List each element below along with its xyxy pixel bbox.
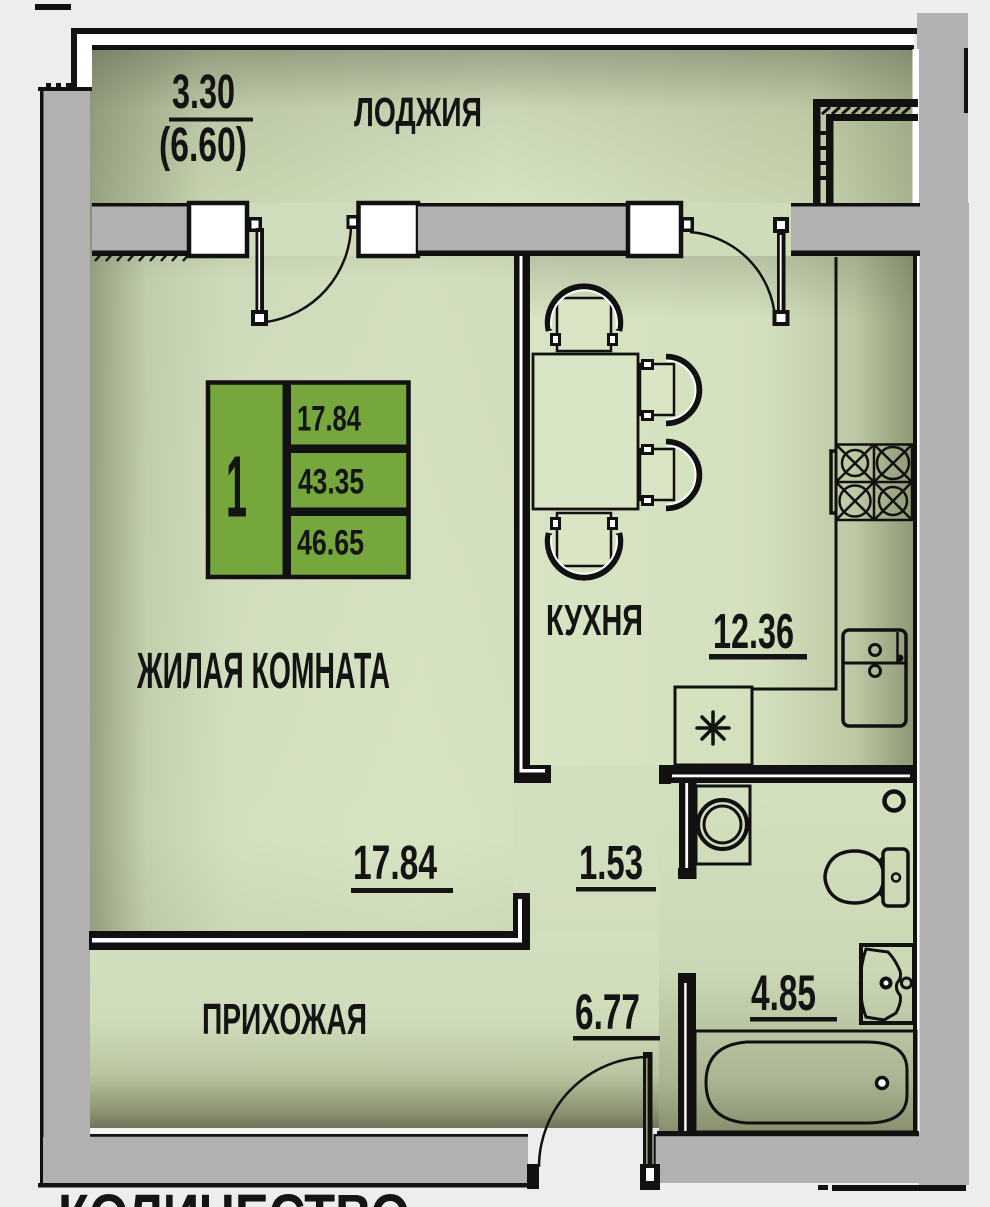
- svg-text:3.30: 3.30: [172, 66, 235, 119]
- svg-text:1.53: 1.53: [579, 837, 643, 890]
- svg-text:17.84: 17.84: [353, 837, 437, 890]
- svg-text:КУХНЯ: КУХНЯ: [546, 596, 643, 645]
- svg-text:43.35: 43.35: [298, 463, 364, 502]
- svg-text:1: 1: [226, 439, 247, 536]
- svg-text:ЖИЛАЯ КОМНАТА: ЖИЛАЯ КОМНАТА: [136, 642, 390, 699]
- svg-text:17.84: 17.84: [297, 400, 361, 439]
- svg-text:4.85: 4.85: [751, 965, 816, 1021]
- svg-text:(6.60): (6.60): [159, 119, 247, 172]
- svg-text:6.77: 6.77: [575, 984, 640, 1040]
- svg-text:46.65: 46.65: [297, 524, 364, 563]
- svg-text:ЛОДЖИЯ: ЛОДЖИЯ: [354, 89, 482, 135]
- svg-text:12.36: 12.36: [713, 605, 794, 659]
- svg-text:ПРИХОЖАЯ: ПРИХОЖАЯ: [202, 995, 367, 1044]
- svg-text:КОЛИЧЕСТВО: КОЛИЧЕСТВО: [58, 1182, 410, 1207]
